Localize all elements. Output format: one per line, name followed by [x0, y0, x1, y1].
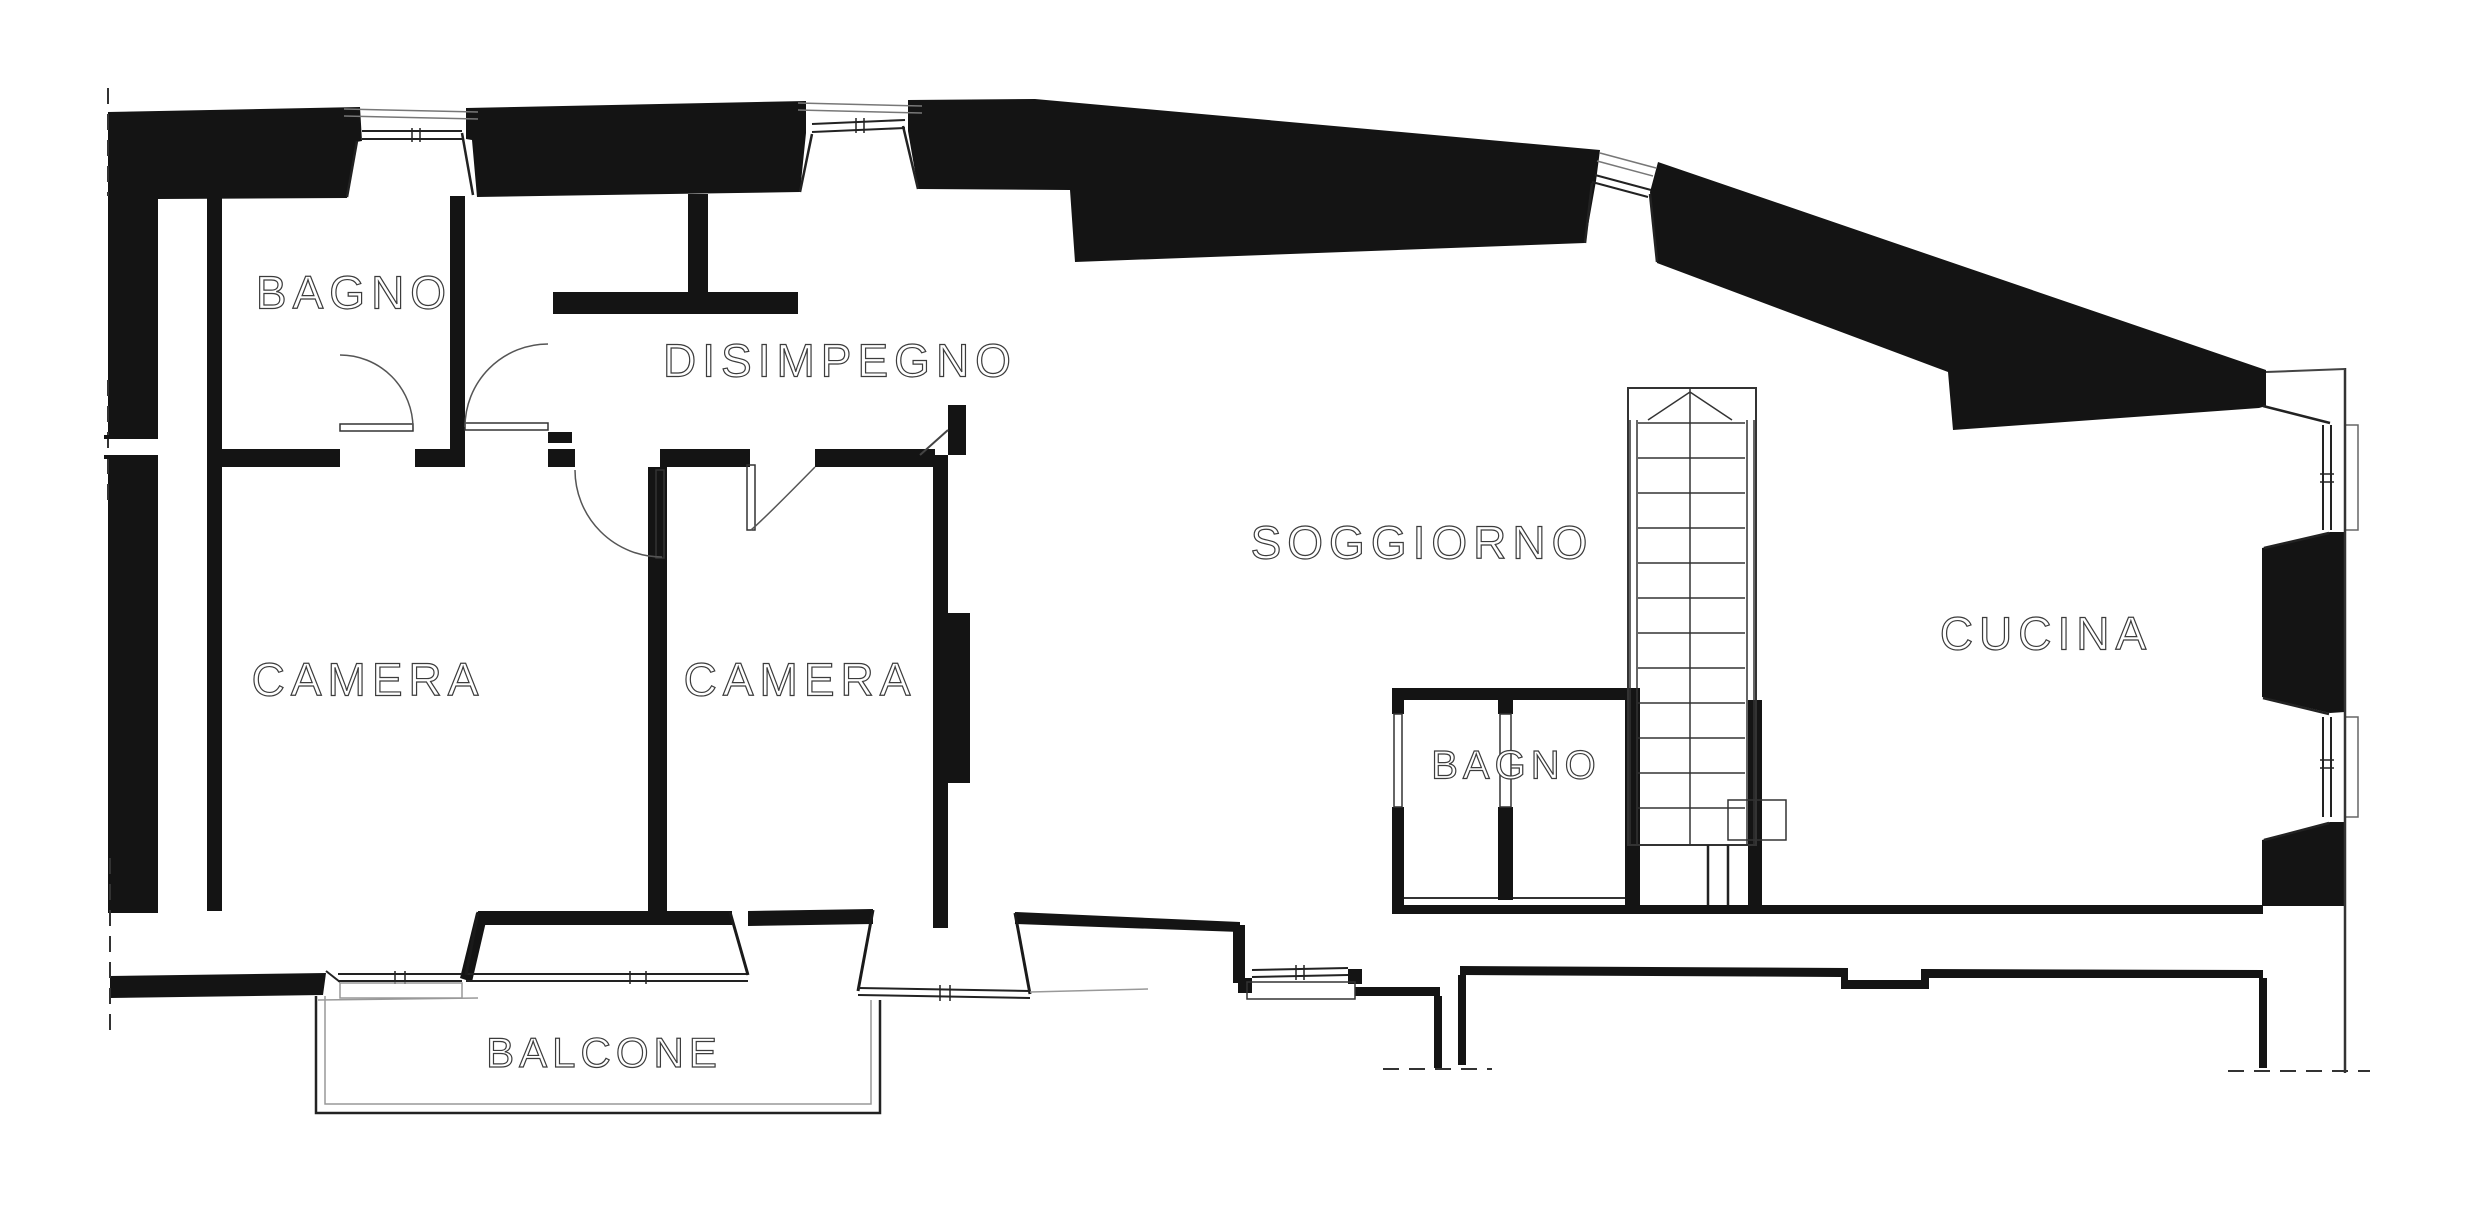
- door-d2-arc: [465, 344, 548, 427]
- door-w7-frame-b: [1252, 975, 1348, 977]
- wall-south-3: [748, 909, 873, 926]
- wall-east-low: [2262, 822, 2345, 906]
- door-w7-frame-a: [1252, 968, 1348, 970]
- wall-south-2: [478, 911, 732, 925]
- wall-diagonal: [1650, 162, 2266, 430]
- window-w10-frame-a: [858, 988, 1030, 991]
- wall-north-1: [222, 449, 340, 467]
- window-w9-reveal-r: [730, 912, 748, 975]
- door-d2-leaf: [465, 423, 548, 430]
- wall-bagno-east: [450, 196, 465, 455]
- wall-pier-cap: [548, 432, 572, 443]
- wall-north-4: [660, 449, 750, 467]
- window-w3-frame-b: [812, 128, 905, 132]
- wall-camera2-east: [933, 455, 948, 928]
- window-w5-sill: [2345, 425, 2358, 530]
- wall-south-1: [110, 973, 326, 998]
- window-w2-reveal-r: [462, 133, 473, 195]
- bblock-door-a: [1394, 714, 1402, 807]
- sill-w3-b: [798, 110, 922, 113]
- wall-top-right-a: [908, 99, 1600, 262]
- room-label-disimpegno: DISIMPEGNO: [663, 335, 1017, 387]
- wall-north-3: [548, 449, 575, 467]
- wall-south-soggiorno: [1392, 905, 2263, 914]
- lower-outline-gray: [1030, 989, 1148, 992]
- wall-bblock-left-a: [1392, 700, 1404, 714]
- room-label-cucina: CUCINA: [1940, 608, 2152, 660]
- wall-bblock-left-b: [1392, 807, 1404, 907]
- window-w4-frame-b: [1592, 182, 1648, 197]
- wall-bblock-div-a: [1498, 700, 1513, 714]
- window-w8-sill: [340, 983, 462, 998]
- door-d1-leaf: [340, 424, 413, 431]
- window-w3-frame-a: [812, 120, 905, 124]
- wall-camera2-bump: [948, 613, 970, 783]
- sill-w4-a: [1600, 153, 1656, 168]
- room-label-bagno-1: BAGNO: [256, 267, 452, 319]
- wall-step-pier: [460, 913, 488, 982]
- floor-plan-page: BAGNODISIMPEGNOCAMERACAMERASOGGIORNOBAGN…: [0, 0, 2482, 1213]
- wall-west-inner: [207, 198, 222, 911]
- door-d4-leaf: [747, 465, 755, 530]
- wall-v2263: [2259, 978, 2267, 1068]
- window-w6-sill: [2345, 717, 2358, 817]
- door-d4-arc: [751, 467, 815, 530]
- wall-v1438: [1434, 996, 1442, 1068]
- wall-w7-jamb-l: [1238, 978, 1252, 993]
- wall-t-stem: [688, 194, 708, 292]
- wall-east-mid: [2262, 532, 2345, 713]
- wall-t-bar: [553, 292, 798, 314]
- room-label-camera-2: CAMERA: [684, 654, 917, 706]
- sill-w3-a: [798, 103, 922, 106]
- wall-bblock-top: [1392, 688, 1640, 700]
- wall-bblock-div-b: [1498, 807, 1513, 900]
- floor-plan-canvas: BAGNODISIMPEGNOCAMERACAMERASOGGIORNOBAGN…: [0, 0, 2482, 1213]
- stair-frame: [1628, 388, 1756, 845]
- wall-below-w7: [1355, 987, 1440, 996]
- room-label-camera-1: CAMERA: [252, 654, 485, 706]
- sill-w2-b: [344, 116, 478, 119]
- window-w10-reveal-r: [1015, 913, 1030, 994]
- wall-north-2: [415, 449, 465, 467]
- window-w5-reveal-t: [2263, 406, 2330, 423]
- door-w7-sill: [1247, 982, 1355, 999]
- room-label-balcone: BALCONE: [486, 1029, 722, 1076]
- wall-south-4: [1015, 912, 1240, 932]
- window-w10-frame-b: [858, 995, 1030, 998]
- sill-w2-a: [344, 109, 478, 112]
- door-d1-arc: [340, 355, 413, 428]
- wall-west-lower: [108, 457, 158, 913]
- wall-top-mid: [466, 101, 806, 197]
- corner-tr-thin: [2266, 369, 2345, 372]
- room-label-bagno-2: BAGNO: [1431, 743, 1600, 787]
- wall-lower-band: [1460, 966, 2263, 989]
- window-w4-frame-a: [1595, 175, 1651, 190]
- wall-north-5: [815, 449, 935, 467]
- wall-soggiorno-stub: [948, 405, 966, 455]
- room-label-soggiorno: SOGGIORNO: [1251, 517, 1594, 569]
- sill-w4-b: [1597, 161, 1653, 176]
- wall-camera2-se: [1233, 925, 1245, 983]
- window-w8-reveal-l: [326, 971, 340, 982]
- wall-v1460: [1458, 975, 1466, 1065]
